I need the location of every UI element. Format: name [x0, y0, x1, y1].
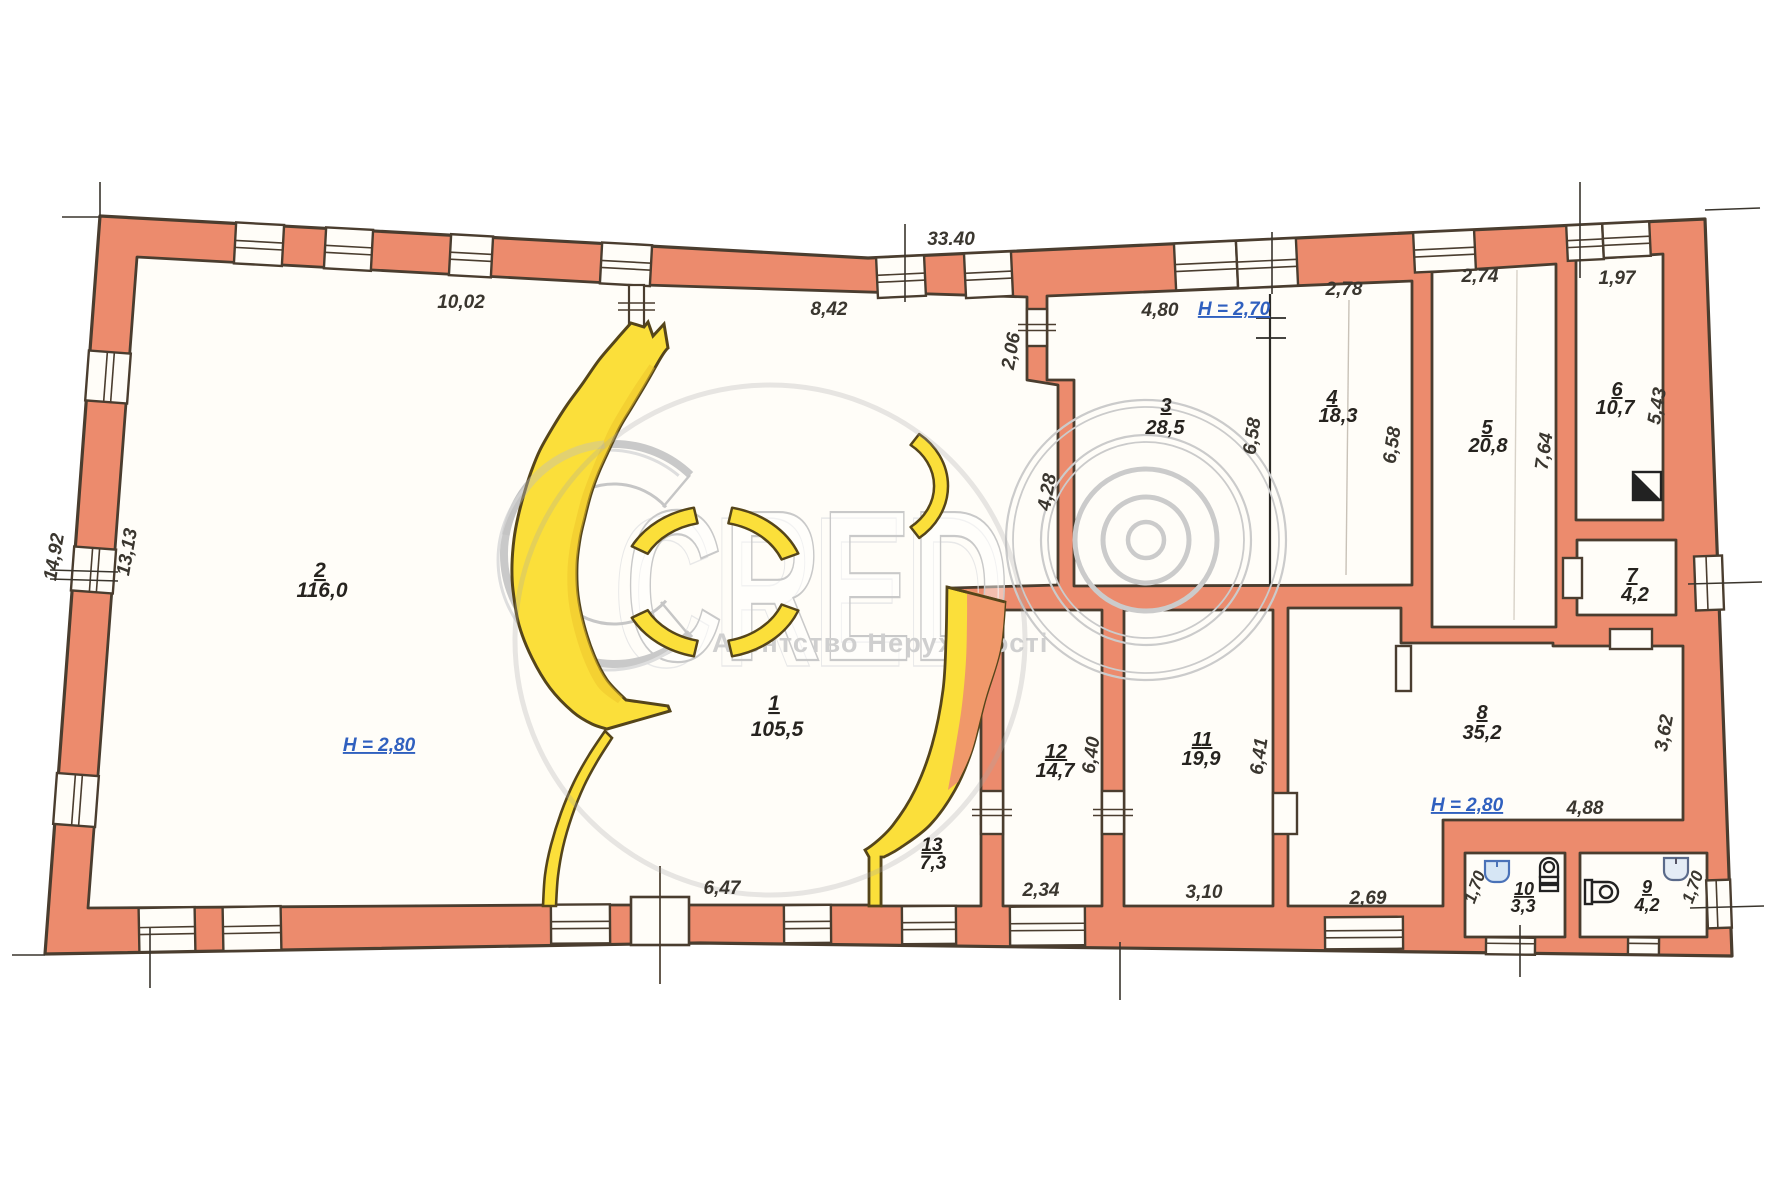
svg-text:10,02: 10,02 [437, 292, 485, 313]
svg-text:4,2: 4,2 [1633, 895, 1659, 915]
svg-text:2,34: 2,34 [1022, 880, 1060, 901]
svg-text:8,42: 8,42 [811, 299, 848, 320]
svg-text:18,3: 18,3 [1319, 405, 1358, 427]
svg-text:20,8: 20,8 [1468, 435, 1509, 457]
svg-text:1,97: 1,97 [1599, 268, 1637, 289]
svg-text:3,10: 3,10 [1186, 882, 1223, 903]
svg-text:105,5: 105,5 [751, 718, 804, 741]
svg-text:4,80: 4,80 [1141, 300, 1179, 321]
svg-text:2,69: 2,69 [1349, 888, 1387, 909]
svg-text:2,74: 2,74 [1461, 266, 1499, 287]
svg-text:35,2: 35,2 [1463, 722, 1502, 744]
svg-text:H = 2,80: H = 2,80 [343, 735, 416, 756]
svg-text:9: 9 [1642, 877, 1652, 897]
svg-text:4,88: 4,88 [1566, 798, 1604, 819]
svg-text:8: 8 [1476, 702, 1488, 724]
svg-text:116,0: 116,0 [297, 579, 348, 602]
svg-text:28,5: 28,5 [1145, 417, 1186, 439]
svg-text:3,3: 3,3 [1510, 896, 1535, 916]
svg-text:1: 1 [768, 692, 780, 715]
svg-text:19,9: 19,9 [1182, 748, 1222, 770]
svg-text:7,3: 7,3 [920, 853, 947, 874]
svg-text:14,7: 14,7 [1036, 760, 1076, 782]
svg-text:H = 2,70: H = 2,70 [1198, 299, 1271, 320]
svg-text:33.40: 33.40 [927, 229, 975, 250]
svg-text:H = 2,80: H = 2,80 [1431, 795, 1504, 816]
svg-text:4,2: 4,2 [1620, 584, 1649, 606]
svg-text:6,47: 6,47 [704, 878, 742, 899]
svg-text:10,7: 10,7 [1596, 397, 1636, 419]
svg-text:2,78: 2,78 [1325, 279, 1363, 300]
svg-text:3: 3 [1160, 395, 1171, 417]
